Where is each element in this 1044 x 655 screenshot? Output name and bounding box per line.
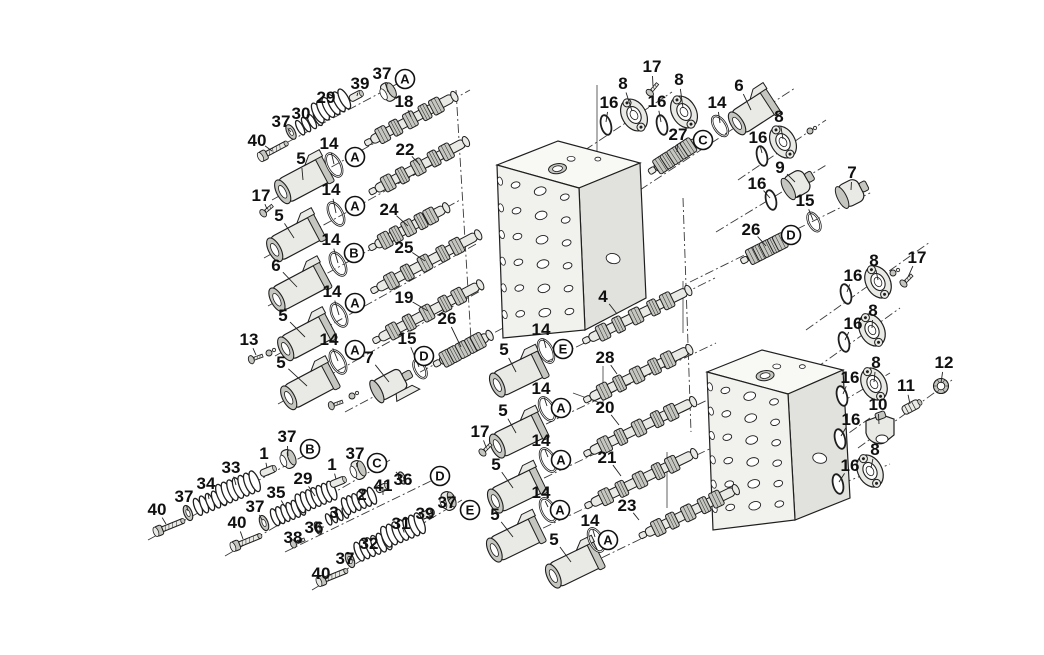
leader-line: [593, 530, 595, 537]
balloon-A: A: [551, 501, 570, 520]
callout-37: 37: [373, 64, 392, 83]
callout-15: 15: [796, 191, 815, 210]
callout-25: 25: [395, 238, 414, 257]
callout-14: 14: [581, 511, 600, 530]
part-screw: [899, 272, 915, 288]
part-oring: [709, 113, 731, 138]
callout-16: 16: [841, 368, 860, 387]
leader-line: [484, 440, 486, 447]
callout-24: 24: [380, 200, 399, 219]
callout-34: 34: [197, 474, 216, 493]
callout-40: 40: [148, 500, 167, 519]
part-oring: [324, 200, 347, 228]
callout-37: 37: [278, 427, 297, 446]
callout-3: 3: [329, 503, 338, 522]
balloon-A: A: [552, 399, 571, 418]
callout-6: 6: [271, 256, 280, 275]
callout-16: 16: [748, 174, 767, 193]
callout-5: 5: [278, 306, 287, 325]
svg-text:A: A: [603, 533, 613, 548]
balloon-E: E: [554, 340, 573, 359]
svg-text:D: D: [786, 228, 795, 243]
callout-23: 23: [618, 496, 637, 515]
callout-21: 21: [598, 448, 617, 467]
callout-39: 39: [416, 504, 435, 523]
callout-10: 10: [869, 395, 888, 414]
callout-40: 40: [248, 131, 267, 150]
callout-9: 9: [775, 158, 784, 177]
callout-14: 14: [322, 180, 341, 199]
part-ball: [266, 348, 276, 356]
callout-5: 5: [274, 206, 283, 225]
callout-5: 5: [490, 505, 499, 524]
callout-17: 17: [908, 248, 927, 267]
svg-text:A: A: [350, 343, 360, 358]
svg-text:D: D: [435, 469, 444, 484]
part-spool: [430, 327, 496, 372]
balloon-A: A: [346, 148, 365, 167]
callout-28: 28: [596, 348, 615, 367]
diagram-canvas: 4037302939371851422175142461425514191351…: [0, 0, 1044, 655]
leader-line: [287, 446, 288, 456]
callout-5: 5: [549, 530, 558, 549]
callout-5: 5: [491, 455, 500, 474]
leader-line: [652, 76, 653, 86]
callout-11: 11: [897, 376, 915, 395]
part-block-2: [707, 350, 850, 530]
balloon-E: E: [461, 501, 480, 520]
svg-text:A: A: [350, 150, 360, 165]
svg-text:A: A: [555, 503, 565, 518]
callout-26: 26: [438, 309, 457, 328]
callout-37: 37: [246, 497, 265, 516]
callout-14: 14: [532, 379, 551, 398]
callout-14: 14: [532, 320, 551, 339]
callout-7: 7: [847, 163, 856, 182]
callout-5: 5: [276, 353, 285, 372]
callout-31: 31: [392, 514, 411, 533]
part-oring16: [837, 331, 852, 353]
callout-16: 16: [842, 410, 861, 429]
callout-5: 5: [296, 149, 305, 168]
callout-8: 8: [674, 70, 683, 89]
svg-text:A: A: [556, 401, 566, 416]
balloon-A: A: [346, 197, 365, 216]
callout-18: 18: [395, 92, 414, 111]
callout-13: 13: [240, 330, 259, 349]
svg-text:A: A: [350, 296, 360, 311]
leader-line: [335, 474, 336, 479]
leader-line: [253, 348, 256, 355]
callout-37: 37: [438, 493, 457, 512]
callout-17: 17: [252, 186, 271, 205]
callout-16: 16: [600, 93, 619, 112]
callout-20: 20: [596, 398, 615, 417]
balloon-B: B: [301, 440, 320, 459]
part-elbow: [866, 411, 894, 444]
callout-35: 35: [267, 483, 286, 502]
part-washer: [257, 514, 270, 532]
svg-text:C: C: [698, 133, 708, 148]
callout-26: 26: [742, 220, 761, 239]
callout-5: 5: [499, 340, 508, 359]
svg-text:A: A: [350, 199, 360, 214]
part-oring16: [599, 114, 614, 136]
callout-36: 36: [394, 470, 413, 489]
callout-14: 14: [532, 431, 551, 450]
balloon-D: D: [415, 347, 434, 366]
svg-text:A: A: [556, 453, 566, 468]
exploded-parts-diagram: 4037302939371851422175142461425514191351…: [0, 0, 1044, 655]
balloon-D: D: [431, 467, 450, 486]
svg-text:D: D: [419, 349, 428, 364]
callout-38: 38: [284, 528, 303, 547]
balloon-D: D: [782, 226, 801, 245]
svg-text:B: B: [349, 246, 358, 261]
part-ball: [807, 126, 817, 134]
part-oring16: [655, 114, 670, 136]
callout-29: 29: [317, 88, 336, 107]
callout-37: 37: [272, 112, 291, 131]
callout-17: 17: [471, 422, 490, 441]
callout-19: 19: [395, 288, 414, 307]
callout-2: 2: [357, 485, 366, 504]
leader-line: [878, 414, 879, 424]
part-screw: [327, 398, 344, 411]
svg-text:A: A: [400, 72, 410, 87]
svg-text:B: B: [305, 442, 314, 457]
leader-line: [266, 463, 267, 468]
callout-14: 14: [320, 134, 339, 153]
callout-16: 16: [844, 266, 863, 285]
callout-36: 36: [305, 518, 324, 537]
callout-16: 16: [844, 314, 863, 333]
balloon-B: B: [345, 244, 364, 263]
part-oring16: [839, 283, 854, 305]
callout-16: 16: [648, 92, 667, 111]
balloon-A: A: [396, 70, 415, 89]
balloon-A: A: [346, 294, 365, 313]
callout-12: 12: [935, 353, 954, 372]
callout-1: 1: [327, 455, 336, 474]
balloon-C: C: [368, 454, 387, 473]
leader-line: [333, 199, 336, 213]
callout-39: 39: [351, 74, 370, 93]
callout-27: 27: [669, 125, 688, 144]
callout-1: 1: [259, 444, 268, 463]
callout-16: 16: [841, 456, 860, 475]
callout-14: 14: [532, 483, 551, 502]
part-ball: [349, 391, 359, 399]
callout-8: 8: [868, 301, 877, 320]
callout-8: 8: [871, 353, 880, 372]
callout-40: 40: [312, 564, 331, 583]
callout-16: 16: [749, 128, 768, 147]
callout-8: 8: [618, 74, 627, 93]
callout-41: 41: [374, 476, 393, 495]
balloon-C: C: [694, 131, 713, 150]
callout-14: 14: [322, 230, 341, 249]
callout-17: 17: [643, 57, 662, 76]
callout-37: 37: [175, 487, 194, 506]
svg-text:C: C: [372, 456, 382, 471]
part-bolt: [229, 531, 264, 553]
svg-text:E: E: [559, 342, 568, 357]
callout-6: 6: [734, 76, 743, 95]
callout-5: 5: [498, 401, 507, 420]
callout-22: 22: [396, 140, 415, 159]
callout-33: 33: [222, 458, 241, 477]
callout-37: 37: [336, 549, 355, 568]
callout-4: 4: [598, 287, 608, 306]
part-oring: [805, 211, 823, 234]
part-flange: [764, 120, 803, 163]
callout-14: 14: [323, 282, 342, 301]
leader-line: [334, 249, 338, 263]
callout-8: 8: [869, 251, 878, 270]
callout-8: 8: [774, 107, 783, 126]
callout-7: 7: [364, 348, 373, 367]
leader-line: [356, 463, 357, 467]
balloon-A: A: [599, 531, 618, 550]
leader-line: [240, 531, 243, 539]
part-block-1: [497, 141, 646, 338]
callout-30: 30: [292, 104, 311, 123]
callout-15: 15: [398, 329, 417, 348]
part-oring16: [755, 145, 770, 167]
balloon-A: A: [346, 341, 365, 360]
callout-14: 14: [708, 93, 727, 112]
callout-32: 32: [360, 534, 379, 553]
part-valve11: [901, 397, 924, 415]
callout-14: 14: [320, 330, 339, 349]
callout-37: 37: [346, 444, 365, 463]
callout-29: 29: [294, 469, 313, 488]
part-pvalve: [367, 362, 420, 409]
callout-40: 40: [228, 513, 247, 532]
svg-text:E: E: [466, 503, 475, 518]
balloon-A: A: [552, 451, 571, 470]
callout-8: 8: [870, 440, 879, 459]
